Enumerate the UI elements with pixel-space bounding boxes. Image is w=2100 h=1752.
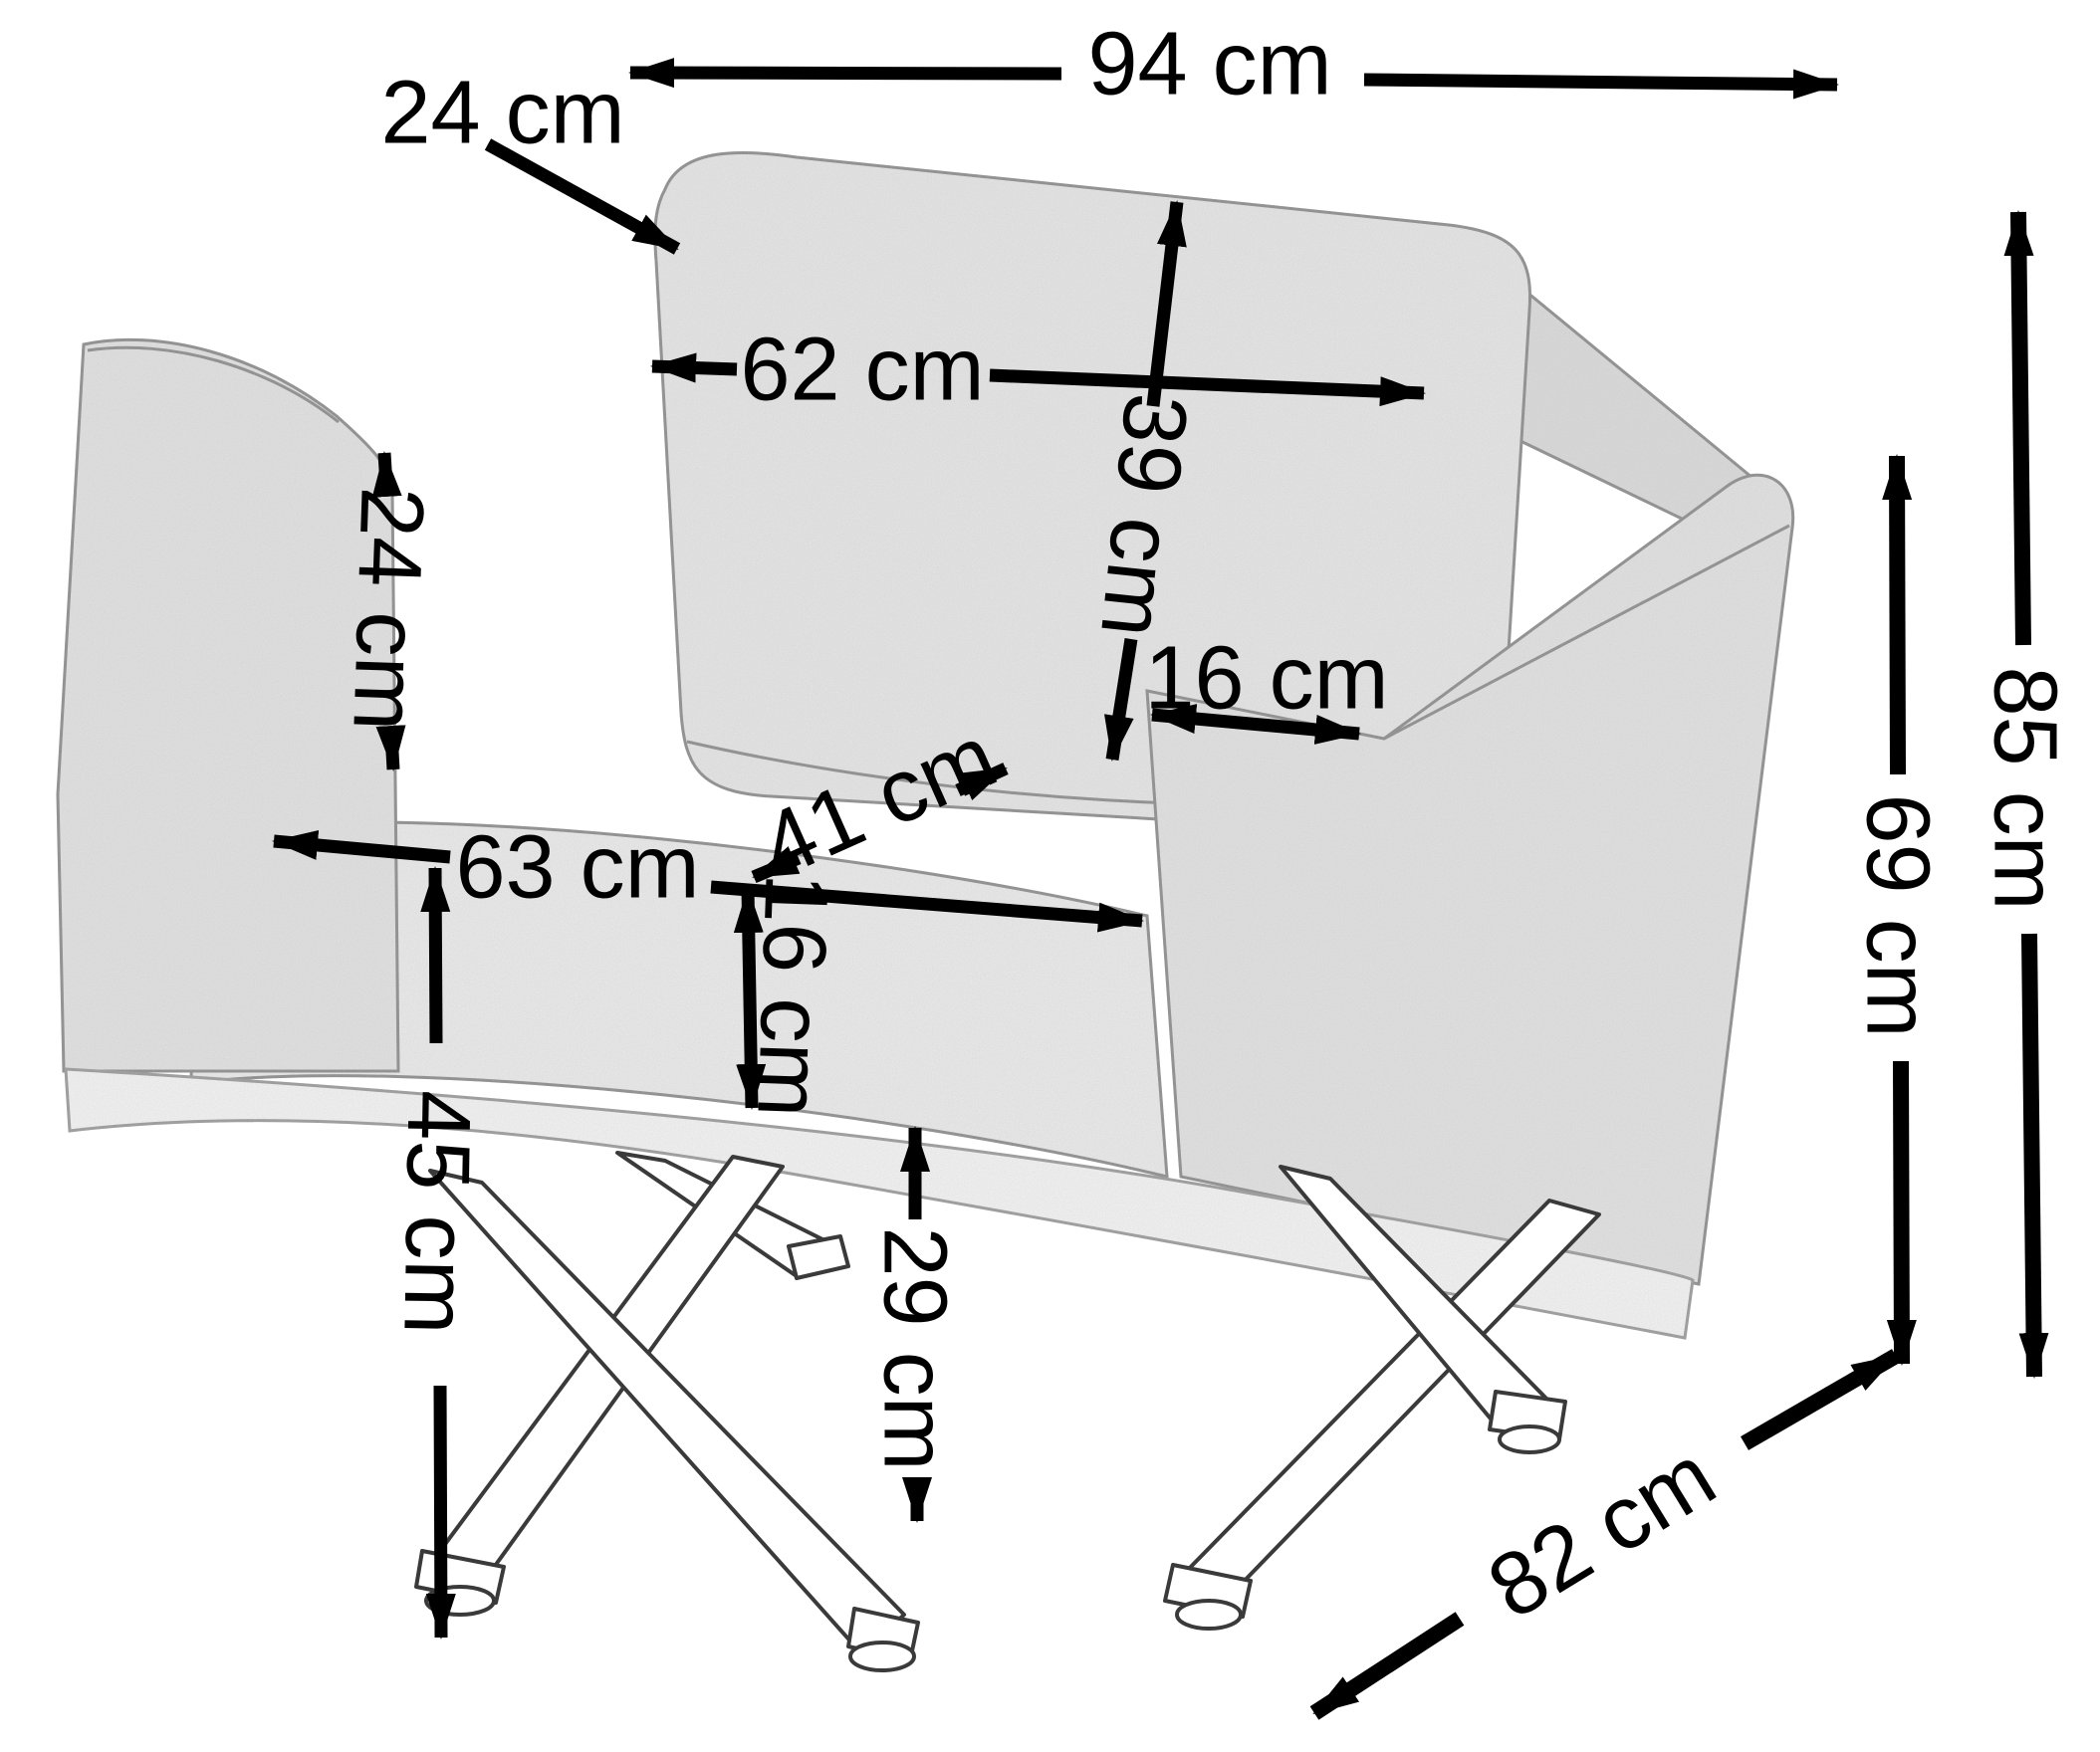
label-overall-width: 94 cm [1087,15,1331,114]
label-seat-width: 63 cm [455,818,699,918]
leg-foot-pad [850,1642,914,1670]
label-armrest-width: 16 cm [1144,629,1388,729]
label-armrest-above-seat: 24 cm [334,486,441,733]
dimension-diagram: 94 cm 24 cm 62 cm 39 cm 16 cm 24 cm 63 c… [0,0,2100,1752]
leg-foot-pad [1500,1426,1559,1452]
leg-foot [789,1236,848,1278]
leg-foot-pad [1177,1601,1241,1629]
label-seat-height: 45 cm [384,1090,488,1336]
label-overall-depth: 82 cm [1472,1426,1732,1639]
diagram-svg: 94 cm 24 cm 62 cm 39 cm 16 cm 24 cm 63 c… [0,0,2100,1752]
label-back-cushion-width: 62 cm [740,321,984,420]
label-under-seat-clearance: 29 cm [865,1226,965,1470]
label-back-cushion-depth: 24 cm [380,64,624,163]
label-overall-height: 85 cm [1976,666,2075,910]
label-armrest-height: 69 cm [1848,793,1948,1037]
label-seat-thickness: 16 cm [738,872,845,1119]
